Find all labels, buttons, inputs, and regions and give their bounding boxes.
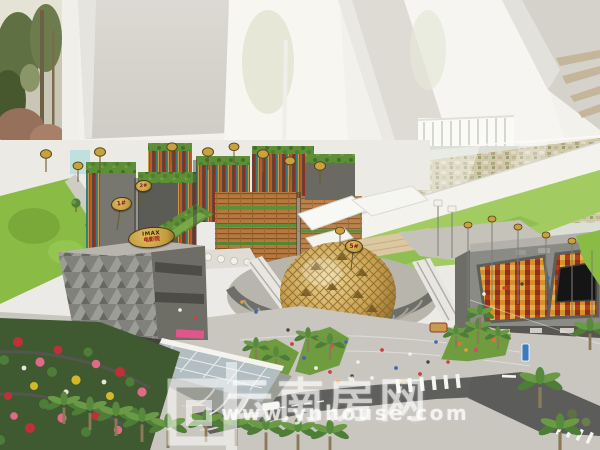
concrete-pillar-left (78, 0, 236, 139)
model-sign-building-1-label: 1# (117, 201, 127, 208)
model-photo-scene (0, 0, 600, 450)
window-trees (0, 0, 66, 152)
balcony-railing (418, 116, 514, 150)
imax-sign-line2: 电影院 (143, 237, 160, 244)
model-sign-building-5-label: 5# (349, 243, 359, 250)
screenshot-root: 1# 2# 5# IMAX 电影院 云南房网 www.ynhouse.com (0, 0, 600, 450)
model-sign-building-2-label: 2# (139, 183, 147, 189)
